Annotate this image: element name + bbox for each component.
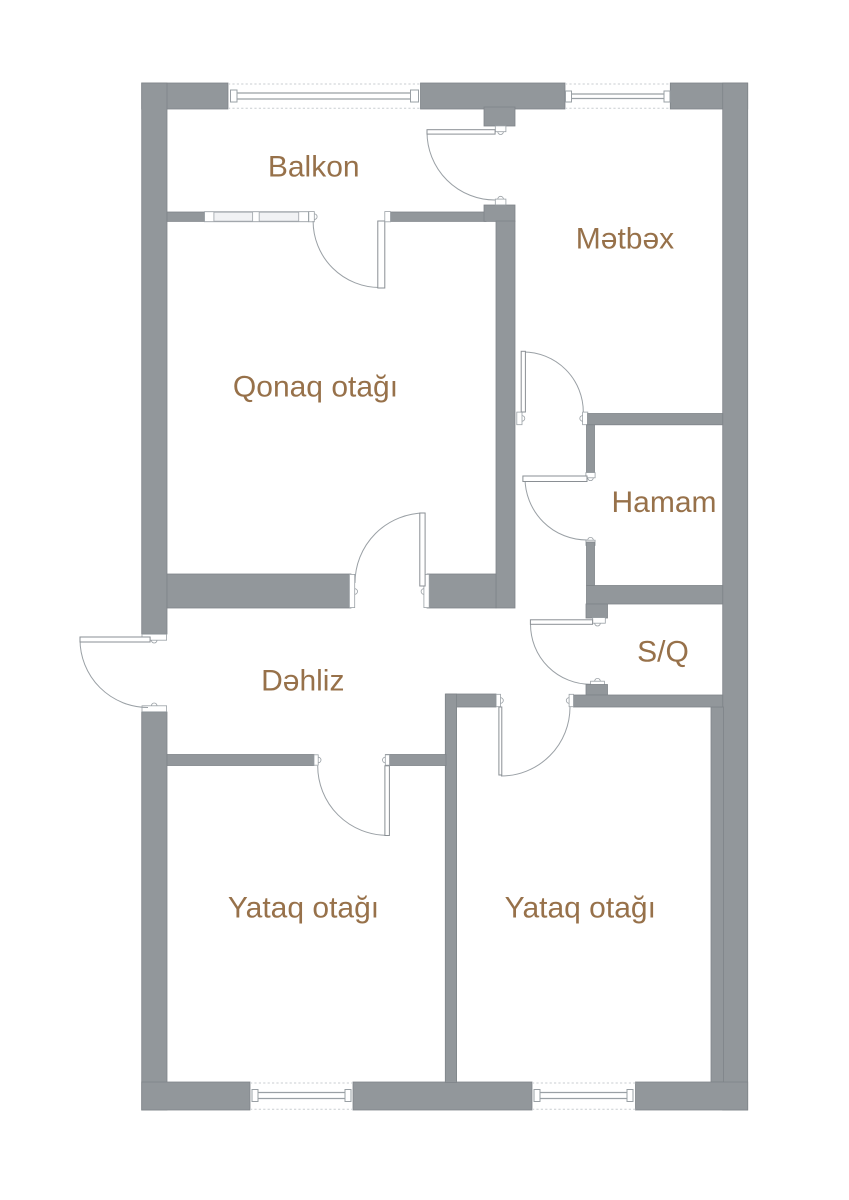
svg-text:Mətbəx: Mətbəx bbox=[576, 223, 674, 256]
svg-text:Hamam: Hamam bbox=[611, 486, 716, 519]
svg-text:Dəhliz: Dəhliz bbox=[261, 665, 344, 698]
svg-text:Qonaq otağı: Qonaq otağı bbox=[233, 371, 398, 404]
svg-text:Yataq otağı: Yataq otağı bbox=[505, 892, 656, 925]
svg-text:Balkon: Balkon bbox=[268, 151, 360, 184]
svg-text:S/Q: S/Q bbox=[637, 636, 689, 669]
svg-text:Yataq otağı: Yataq otağı bbox=[228, 892, 379, 925]
